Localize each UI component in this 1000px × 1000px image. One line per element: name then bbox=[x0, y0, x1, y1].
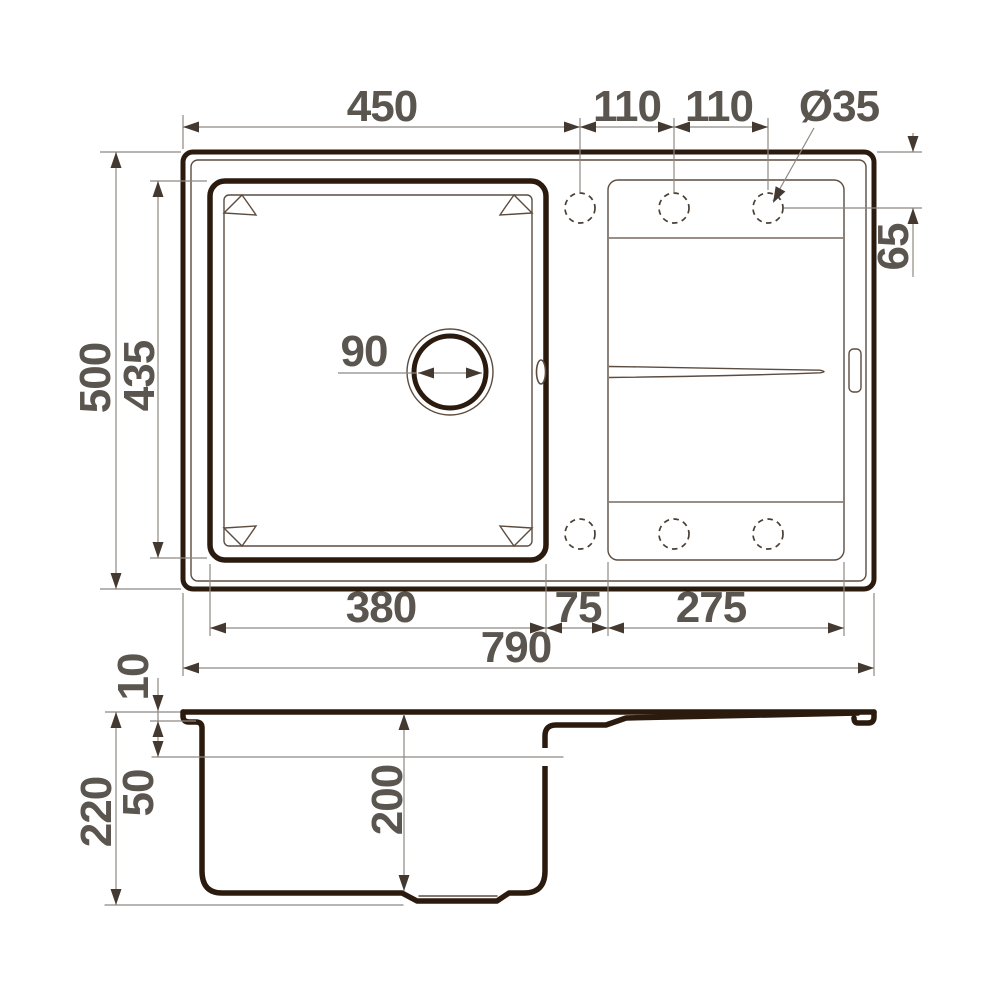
dim-drain-hole: 90 bbox=[341, 327, 388, 376]
section-profile bbox=[183, 712, 858, 901]
dim-bowl-outer-depth: 435 bbox=[115, 340, 164, 411]
dim-rim-to-board-drop: 50 bbox=[114, 770, 163, 817]
dim-divider-width: 75 bbox=[555, 583, 602, 632]
dim-overall-height: 220 bbox=[72, 777, 121, 847]
drawing-svg: 450 110 110 Ø35 500 435 65 90 380 75 275… bbox=[0, 0, 1000, 1000]
dim-bowl-width: 380 bbox=[346, 583, 416, 632]
section-view bbox=[105, 712, 874, 905]
dim-overall-width: 790 bbox=[481, 623, 551, 672]
dim-bowl-depth: 200 bbox=[363, 765, 412, 835]
dim-hole-pitch-1: 110 bbox=[593, 82, 661, 131]
sink-technical-drawing: 450 110 110 Ø35 500 435 65 90 380 75 275… bbox=[0, 0, 1000, 1000]
dim-rim-height: 10 bbox=[109, 654, 158, 701]
dim-drainboard-width: 275 bbox=[676, 583, 747, 632]
dim-top-width: 450 bbox=[347, 82, 417, 131]
dim-overall-depth: 500 bbox=[71, 343, 120, 413]
dim-hole-pitch-2: 110 bbox=[685, 82, 753, 131]
top-view bbox=[183, 152, 874, 589]
dim-hole-edge-offset: 65 bbox=[869, 223, 918, 270]
dim-hole-diameter: Ø35 bbox=[799, 82, 880, 131]
overflow-slot bbox=[537, 360, 546, 384]
rim-plate-slot bbox=[849, 349, 861, 392]
